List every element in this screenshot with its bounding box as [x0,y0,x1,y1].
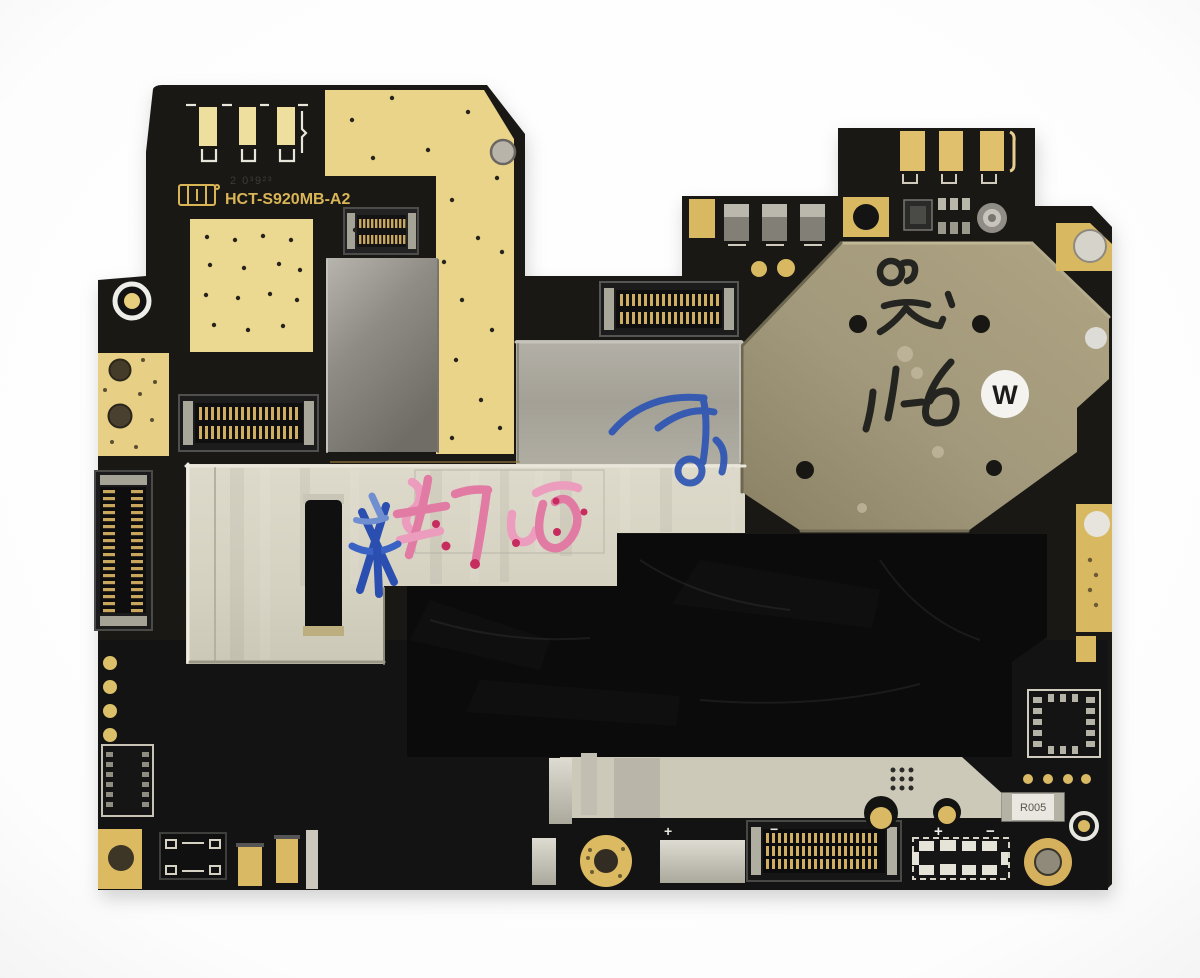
svg-text:HCT-S920MB-A2: HCT-S920MB-A2 [225,191,350,208]
svg-text:−: − [986,823,995,840]
svg-text:2 0³9²³: 2 0³9²³ [230,175,273,187]
svg-text:−: − [770,821,778,837]
svg-text:W: W [992,380,1018,410]
svg-text:R005: R005 [1020,802,1046,814]
svg-text:+: + [664,823,672,839]
svg-text:+: + [934,823,943,840]
